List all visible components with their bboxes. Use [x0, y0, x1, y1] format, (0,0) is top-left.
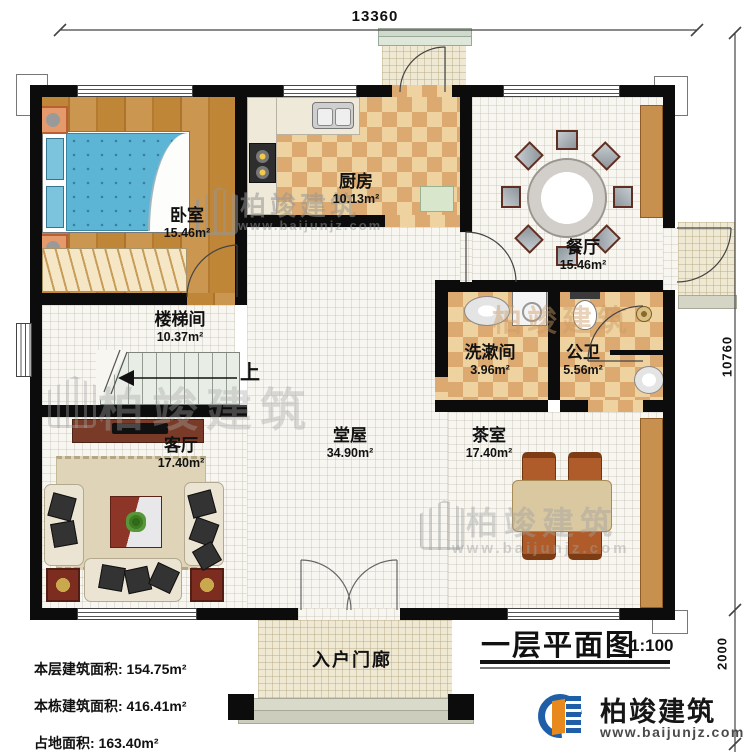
room-name: 堂屋	[295, 426, 405, 446]
bathroom-sink	[634, 366, 664, 394]
stairs-up-label: 上	[235, 362, 265, 385]
room-area: 5.56m²	[528, 363, 638, 377]
wall-bedroom-right	[235, 85, 247, 305]
room-label-bathroom: 公卫 5.56m²	[528, 343, 638, 377]
room-name: 茶室	[434, 426, 544, 446]
room-name: 入户门廊	[277, 650, 427, 671]
main-door-threshold	[298, 608, 400, 620]
dining-chair	[501, 186, 521, 208]
info-floor-area: 本层建筑面积: 154.75m²	[34, 660, 274, 679]
bed-pillow	[46, 186, 64, 228]
area-info-block: 本层建筑面积: 154.75m² 本栋建筑面积: 416.41m² 占地面积: …	[34, 641, 274, 756]
toilet-bowl	[573, 300, 597, 330]
room-area: 17.40m²	[126, 456, 236, 470]
brand-logo-icon	[538, 690, 594, 746]
wall-bedroom-bottom	[30, 293, 187, 305]
dimension-right-upper: 10760	[720, 322, 735, 392]
room-name: 楼梯间	[125, 310, 235, 330]
washroom-sink	[464, 296, 510, 326]
logo-building-blue	[566, 696, 581, 736]
wall-washroom-bottom	[435, 400, 548, 412]
room-label-living: 客厅 17.40m²	[126, 436, 236, 470]
room-area: 17.40m²	[434, 446, 544, 460]
plan-title: 一层平面图	[481, 622, 636, 664]
room-area: 34.90m²	[295, 446, 405, 460]
sofa-cushion	[124, 566, 152, 594]
hall-floor	[247, 227, 460, 608]
tea-table	[512, 480, 612, 532]
burner	[256, 150, 269, 163]
plan-scale: 1:100	[630, 636, 673, 656]
info-building-area: 本栋建筑面积: 416.41m²	[34, 697, 274, 716]
dimension-top: 13360	[330, 8, 420, 25]
dining-door-threshold	[460, 232, 472, 282]
wall-stair-living	[42, 405, 247, 417]
burner	[256, 166, 269, 179]
title-underline	[480, 660, 670, 664]
tea-cabinet	[640, 418, 663, 608]
sofa-cushion	[50, 520, 78, 548]
machine-drum	[522, 302, 542, 322]
dining-chair	[613, 186, 633, 208]
room-name: 餐厅	[528, 238, 638, 258]
tv	[112, 423, 168, 434]
room-name: 厨房	[301, 172, 411, 192]
logo-building-orange	[552, 699, 565, 735]
room-label-tea: 茶室 17.40m²	[434, 426, 544, 460]
side-door-threshold	[663, 228, 678, 290]
dining-table	[527, 158, 607, 238]
window-bedroom-top	[77, 85, 193, 97]
room-name: 公卫	[528, 343, 638, 363]
wall-bathroom-bottom	[560, 400, 588, 412]
back-porch-step	[378, 36, 472, 46]
wall-right	[663, 290, 675, 620]
room-area: 15.46m²	[132, 226, 242, 240]
room-label-stairwell: 楼梯间 10.37m²	[125, 310, 235, 344]
wardrobe	[42, 248, 187, 292]
bedroom-door-threshold	[187, 293, 235, 305]
wall-kitchen-bottom	[247, 215, 385, 227]
tea-chair	[568, 528, 602, 560]
room-area: 10.13m²	[301, 192, 411, 206]
plant	[126, 512, 146, 532]
shower-head	[636, 306, 652, 322]
room-area: 15.46m²	[528, 258, 638, 272]
dining-cabinet	[640, 105, 663, 218]
washroom-entry	[435, 377, 448, 400]
wall-bathroom-bottom	[643, 400, 675, 412]
side-table	[46, 568, 80, 602]
room-area: 10.37m²	[125, 330, 235, 344]
tea-chair	[522, 528, 556, 560]
back-porch-landing	[382, 44, 466, 85]
door-mat	[420, 186, 454, 212]
window-tea-bottom	[507, 608, 620, 620]
sofa-cushion	[98, 564, 126, 592]
window-dining-top	[503, 85, 620, 97]
dining-chair	[556, 130, 578, 150]
brand-site: www.baijunjz.com	[600, 724, 745, 740]
sink-basin	[317, 108, 333, 126]
room-label-porch: 入户门廊	[277, 650, 427, 671]
room-name: 卧室	[132, 206, 242, 226]
wall-right	[663, 85, 675, 228]
porch-column	[448, 694, 474, 720]
back-door-threshold	[392, 85, 452, 97]
title-underline	[480, 667, 670, 669]
window-living-bottom	[77, 608, 197, 620]
nightstand	[38, 106, 68, 134]
side-table	[190, 568, 224, 602]
kitchen-entry	[385, 215, 460, 227]
room-label-bedroom: 卧室 15.46m²	[132, 206, 242, 240]
room-name: 客厅	[126, 436, 236, 456]
side-porch-step	[678, 295, 737, 309]
wall-kitchen-dining	[460, 85, 472, 232]
dimension-right-lower: 2000	[715, 624, 730, 684]
washing-machine	[512, 291, 547, 326]
window-kitchen-top	[283, 85, 357, 97]
stove	[249, 143, 276, 183]
floor-plan: 柏竣建筑 www.baijunjz.com 柏竣建筑 柏竣建筑 柏竣建筑 www…	[0, 0, 750, 756]
bed-pillow	[46, 138, 64, 180]
bathroom-door-threshold	[588, 400, 643, 412]
sink-basin	[335, 108, 351, 126]
room-label-hall: 堂屋 34.90m²	[295, 426, 405, 460]
room-label-kitchen: 厨房 10.13m²	[301, 172, 411, 206]
room-label-dining: 餐厅 15.46m²	[528, 238, 638, 272]
window-stair-left	[16, 323, 32, 377]
info-footprint-area: 占地面积: 163.40m²	[34, 734, 274, 753]
side-porch-floor	[678, 222, 735, 295]
kitchen-sink	[312, 102, 354, 129]
